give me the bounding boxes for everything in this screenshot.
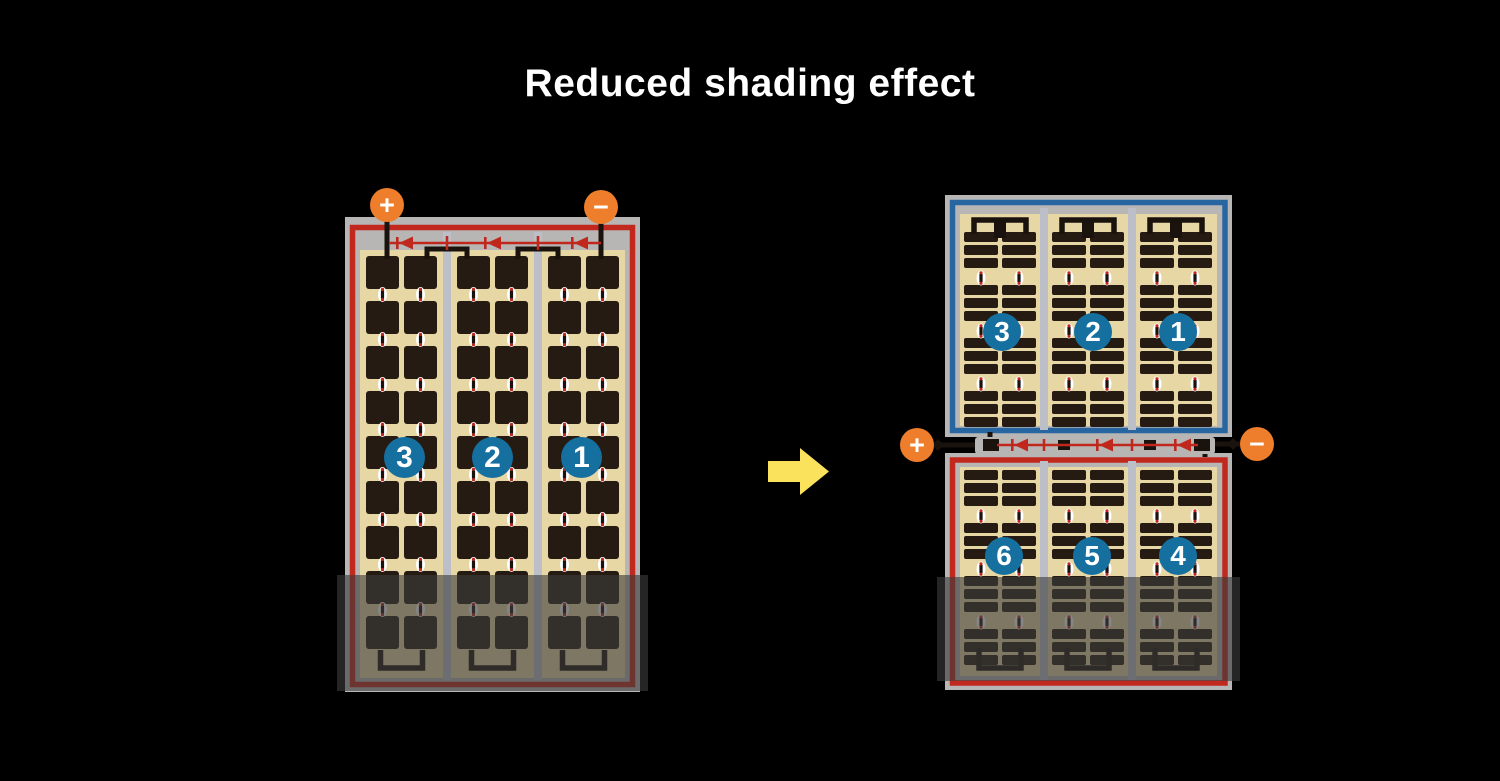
left-string-badge-1: 1 (561, 437, 602, 478)
right-bottom-string-badge-4: 4 (1159, 537, 1197, 575)
right-minus-terminal: − (1240, 427, 1274, 461)
right-top-string-badge-1: 1 (1159, 313, 1197, 351)
right-plus-terminal: + (900, 428, 934, 462)
right-top-string-badge-3: 3 (983, 313, 1021, 351)
page-background: { "title": "Reduced shading effect", "le… (0, 0, 1500, 781)
left-string-badge-3: 3 (384, 437, 425, 478)
transition-arrow-icon (768, 448, 829, 495)
left-string-badge-2: 2 (472, 437, 513, 478)
right-shading-overlay (937, 577, 1240, 681)
shading-effect-diagram (0, 0, 1500, 781)
left-plus-terminal: + (370, 188, 404, 222)
right-bottom-string-badge-6: 6 (985, 537, 1023, 575)
right-bottom-string-badge-5: 5 (1073, 537, 1111, 575)
left-minus-terminal: − (584, 190, 618, 224)
right-top-string-badge-2: 2 (1074, 313, 1112, 351)
left-shading-overlay (337, 575, 648, 691)
diagram-title: Reduced shading effect (0, 62, 1500, 106)
